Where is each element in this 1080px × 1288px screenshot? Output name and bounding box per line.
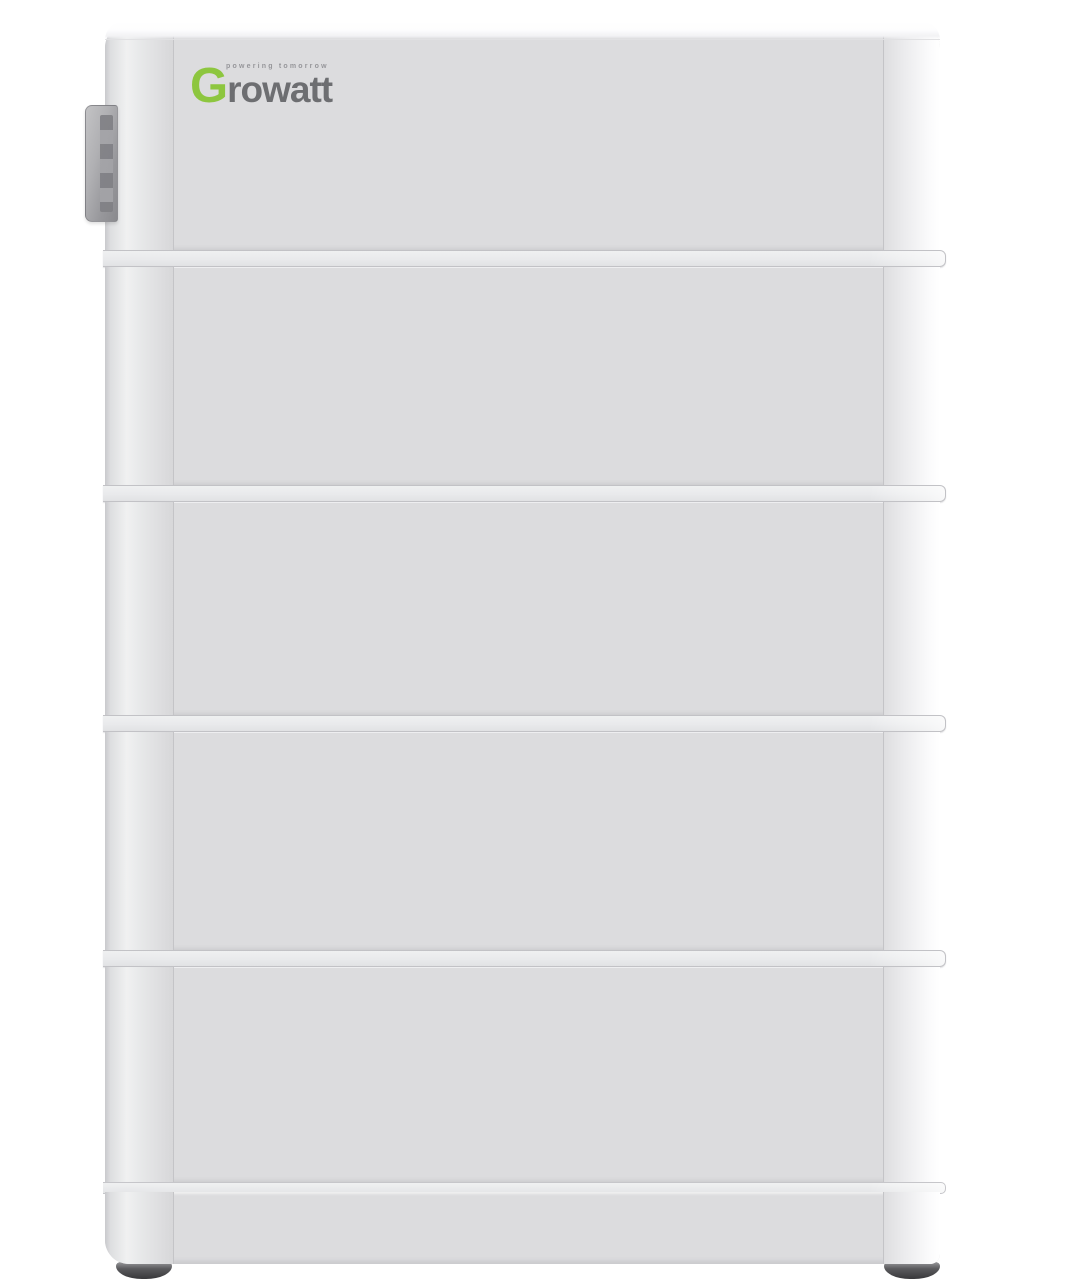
battery-module-5 bbox=[105, 967, 940, 1182]
right-foot bbox=[884, 1262, 940, 1279]
battery-module-3 bbox=[105, 502, 940, 715]
base-unit bbox=[105, 1192, 940, 1264]
product-image-canvas: Growatt powering tomorrow bbox=[0, 0, 1080, 1288]
battery-module-2 bbox=[105, 267, 940, 485]
tower-top-face bbox=[105, 22, 940, 40]
module-junction-2 bbox=[103, 485, 946, 502]
logo-tagline: powering tomorrow bbox=[226, 63, 329, 70]
logo-letter-g: G bbox=[190, 59, 227, 113]
module-junction-4 bbox=[103, 950, 946, 967]
module-junction-1 bbox=[103, 250, 946, 267]
growatt-logo: Growatt powering tomorrow bbox=[190, 62, 332, 111]
logo-word: rowatt bbox=[227, 69, 332, 110]
mounting-bracket bbox=[85, 105, 118, 222]
module-junction-3 bbox=[103, 715, 946, 732]
left-foot bbox=[116, 1262, 172, 1279]
battery-tower: Growatt powering tomorrow bbox=[103, 22, 947, 1264]
battery-module-4 bbox=[105, 732, 940, 950]
bracket-hinge-segments bbox=[100, 115, 113, 212]
battery-module-1: Growatt powering tomorrow bbox=[105, 22, 940, 250]
